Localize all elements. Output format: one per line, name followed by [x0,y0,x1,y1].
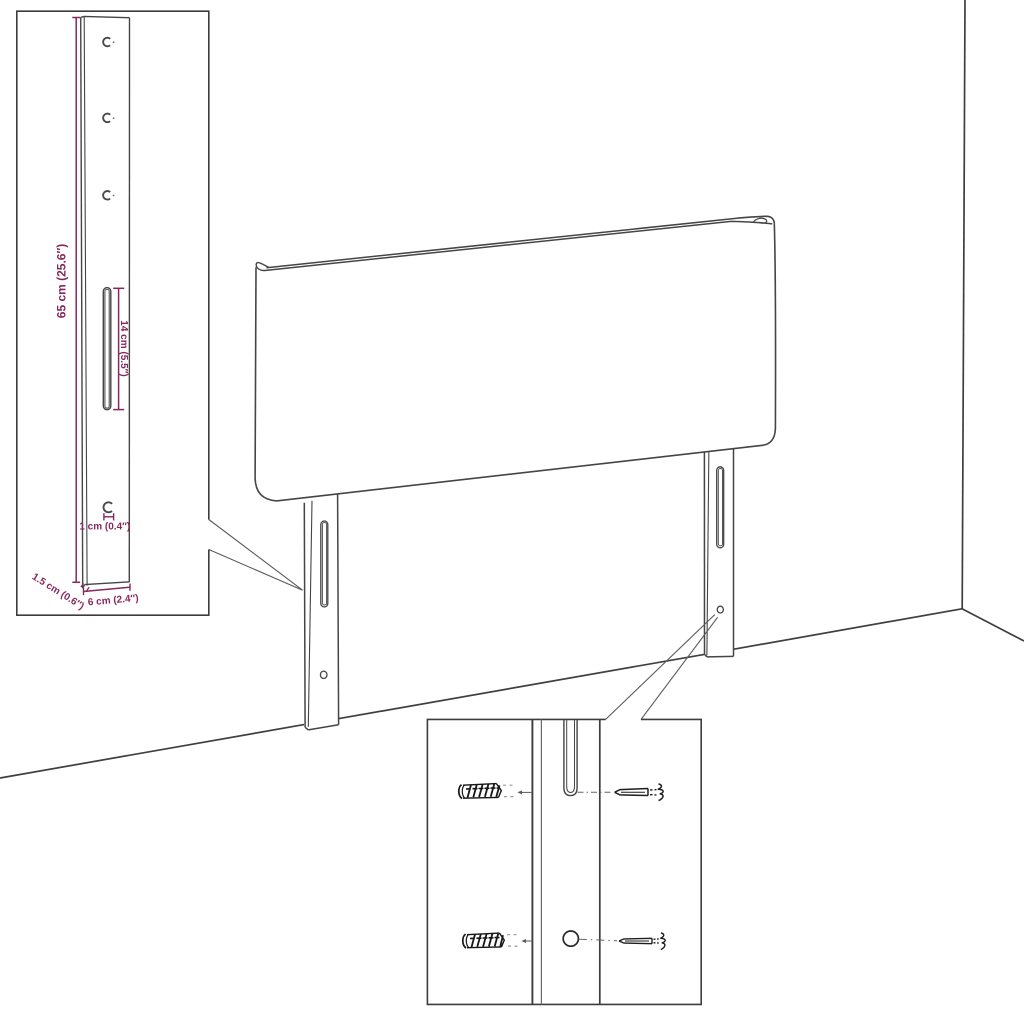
svg-text:1.5 cm (0.6″): 1.5 cm (0.6″) [30,572,86,613]
svg-text:65 cm (25.6″): 65 cm (25.6″) [54,244,68,318]
svg-text:6 cm (2.4″): 6 cm (2.4″) [87,593,139,608]
svg-text:1 cm (0.4″): 1 cm (0.4″) [79,522,130,533]
svg-text:14 cm (5.5″): 14 cm (5.5″) [118,320,129,376]
